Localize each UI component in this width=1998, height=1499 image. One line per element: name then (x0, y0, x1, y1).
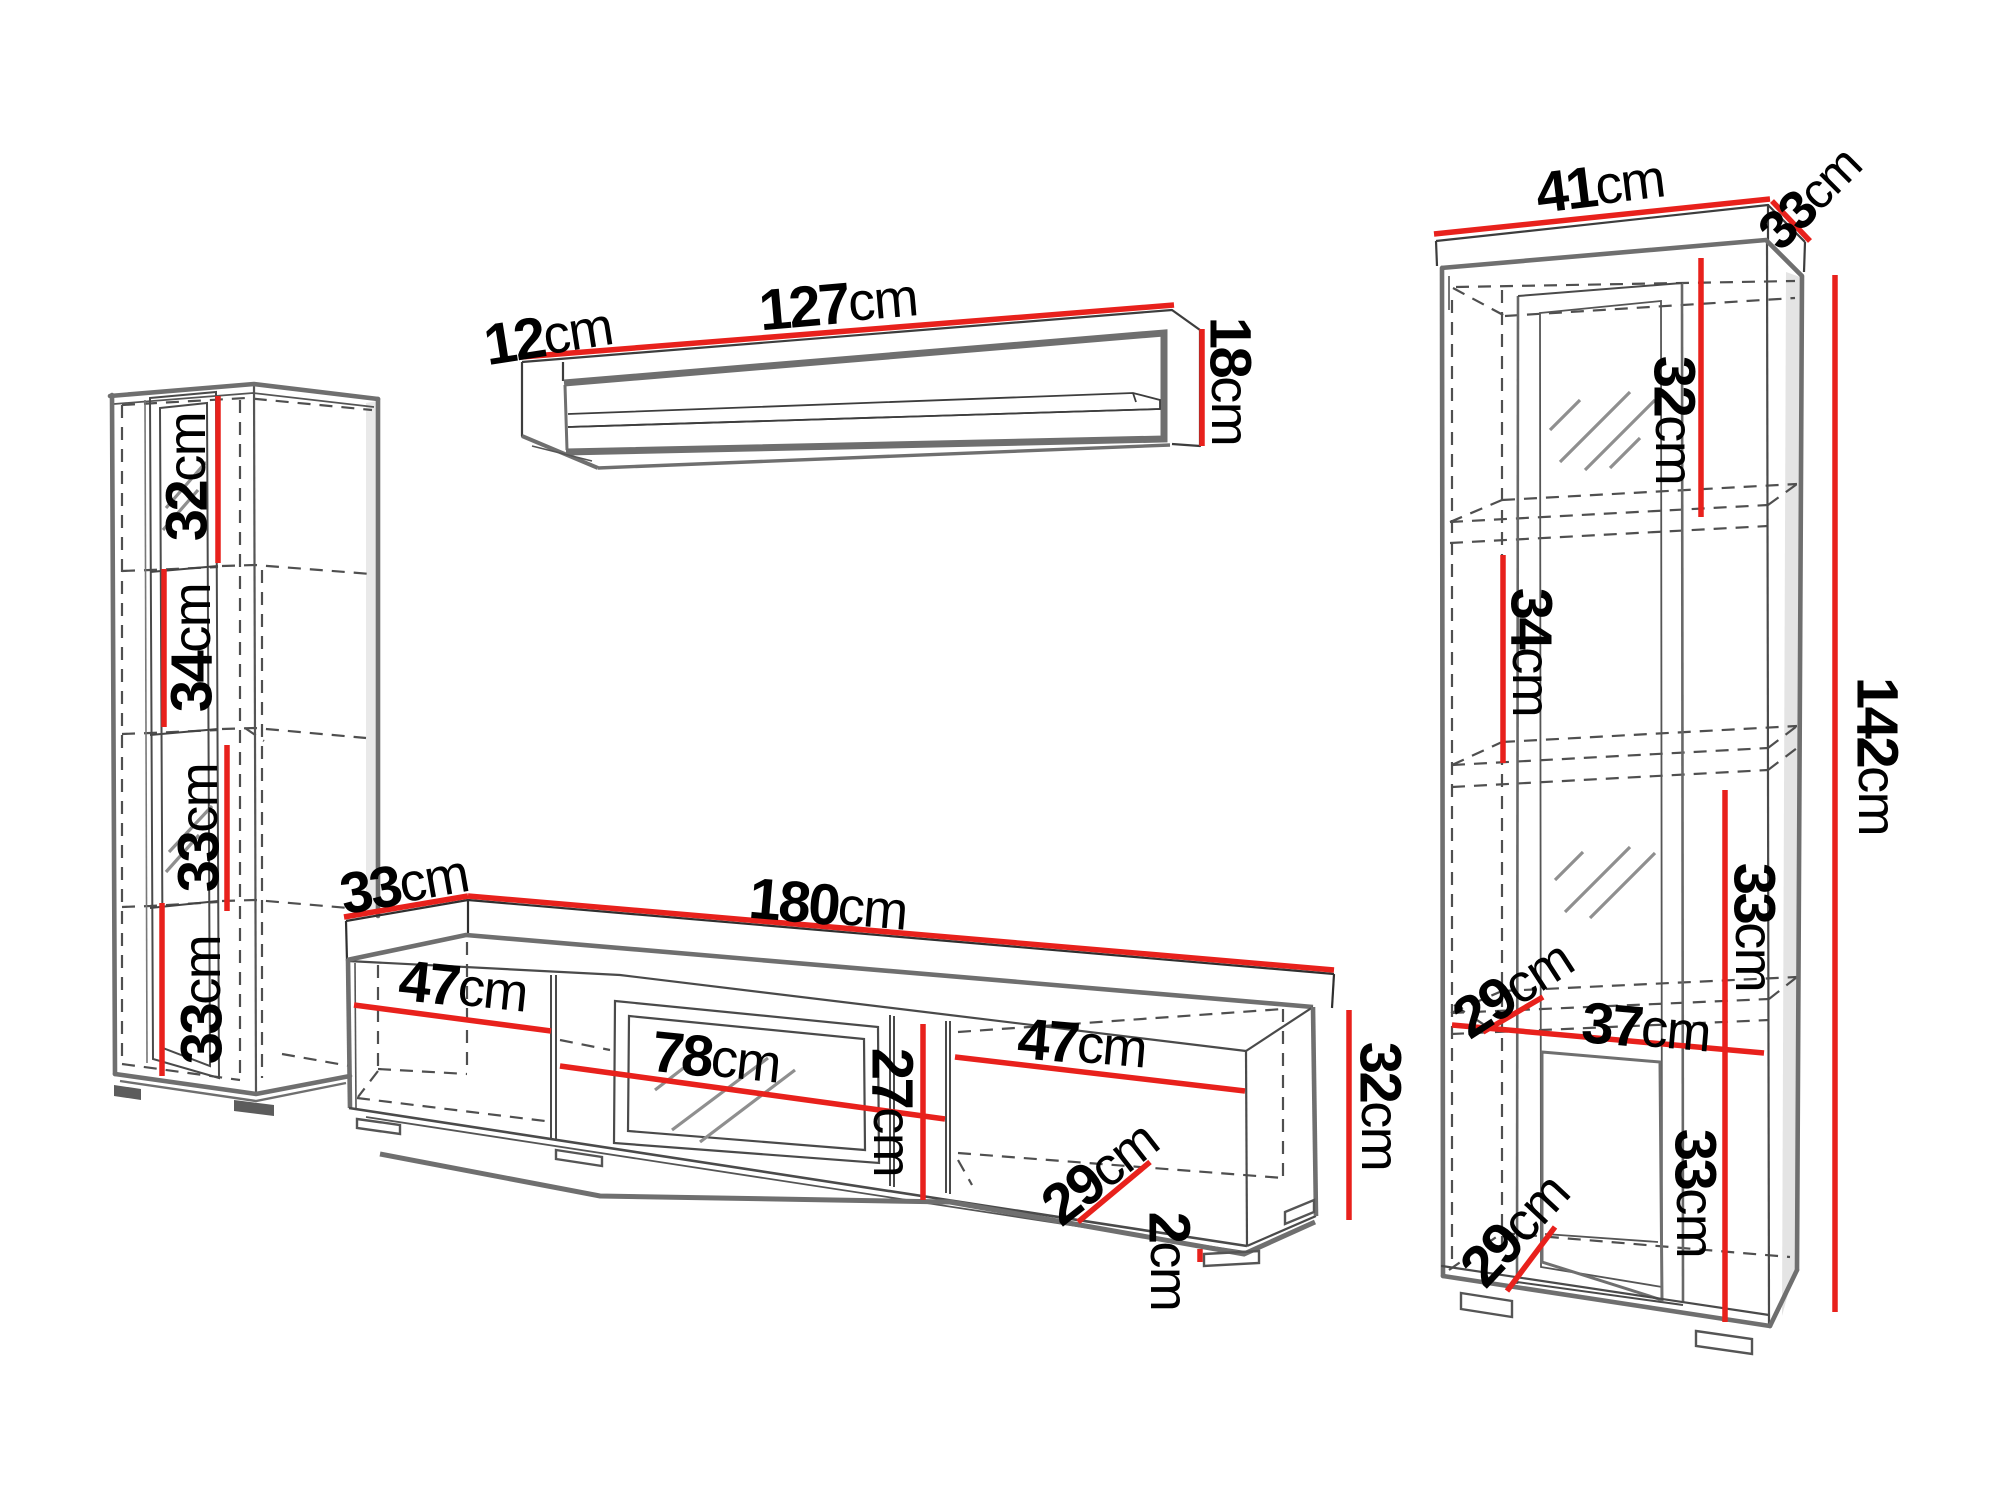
svg-text:34cm: 34cm (160, 584, 225, 713)
svg-text:33cm: 33cm (167, 764, 232, 893)
svg-text:47cm: 47cm (1015, 1006, 1149, 1082)
svg-text:32cm: 32cm (1642, 356, 1707, 485)
svg-text:18cm: 18cm (1198, 317, 1263, 446)
svg-text:142cm: 142cm (1845, 677, 1910, 835)
svg-text:33cm: 33cm (170, 936, 235, 1065)
svg-text:34cm: 34cm (1499, 588, 1564, 717)
svg-text:27cm: 27cm (860, 1048, 925, 1177)
svg-text:33cm: 33cm (1722, 863, 1787, 992)
svg-text:37cm: 37cm (1579, 990, 1713, 1066)
svg-text:32cm: 32cm (1348, 1042, 1413, 1171)
svg-text:33cm: 33cm (1663, 1129, 1728, 1258)
svg-text:32cm: 32cm (155, 413, 220, 542)
svg-text:2cm: 2cm (1137, 1212, 1202, 1311)
